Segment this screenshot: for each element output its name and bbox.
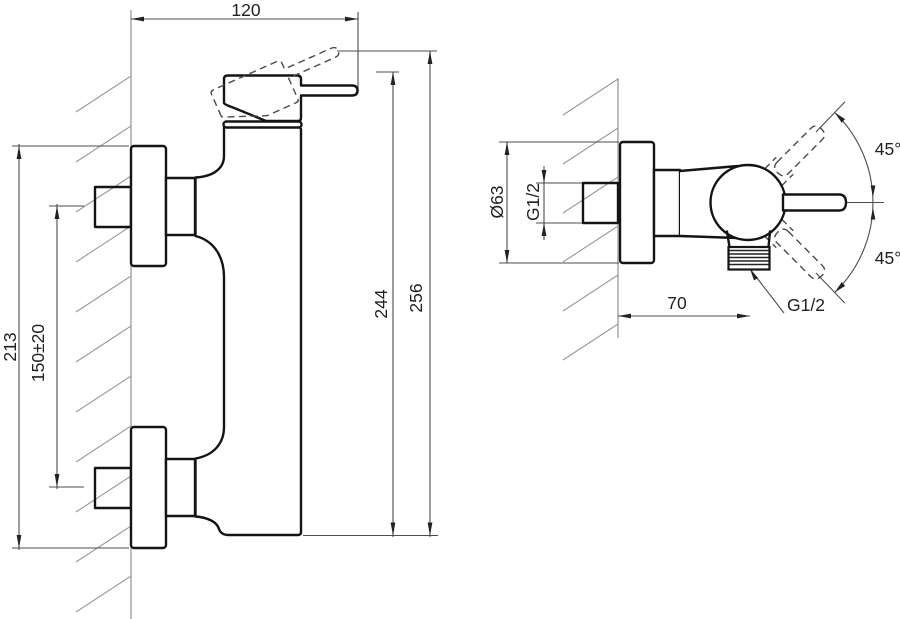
escutcheon-bottom — [131, 427, 166, 548]
supply-pipe-top — [95, 187, 131, 227]
shower-mixer-dimension-drawing: 120 213 150±20 244 256 — [0, 0, 900, 619]
dim-label-213: 213 — [0, 332, 20, 361]
wall-hatching-side — [563, 78, 618, 360]
ball-housing — [711, 165, 786, 240]
connector-bottom — [166, 459, 195, 516]
cartridge-cap — [224, 122, 302, 128]
dim-label-256: 256 — [406, 283, 426, 312]
dim-label-supply-thread: G1/2 — [523, 183, 543, 221]
front-view: 120 213 150±20 244 256 — [0, 0, 438, 619]
lever-rod-side — [783, 195, 846, 211]
dim-label-244: 244 — [371, 289, 391, 318]
dim-label-150: 150±20 — [28, 324, 48, 383]
dim-label-45-up: 45° — [875, 139, 900, 159]
connector-side — [654, 170, 680, 236]
dim-label-45-down: 45° — [875, 248, 900, 268]
mixer-body — [196, 127, 302, 535]
side-view: Ø63 G1/2 70 G1/2 45° 45° — [487, 78, 900, 360]
connector-top — [166, 178, 195, 235]
escutcheon-side — [620, 142, 654, 263]
dim-label-dia63: Ø63 — [487, 185, 507, 218]
wall-hatching-front — [76, 10, 131, 619]
dim-label-120: 120 — [231, 0, 260, 20]
dim-label-70: 70 — [667, 293, 687, 313]
escutcheon-top — [131, 146, 166, 266]
technical-drawing: 120 213 150±20 244 256 — [0, 0, 900, 619]
dim-label-outlet-thread: G1/2 — [787, 295, 825, 315]
